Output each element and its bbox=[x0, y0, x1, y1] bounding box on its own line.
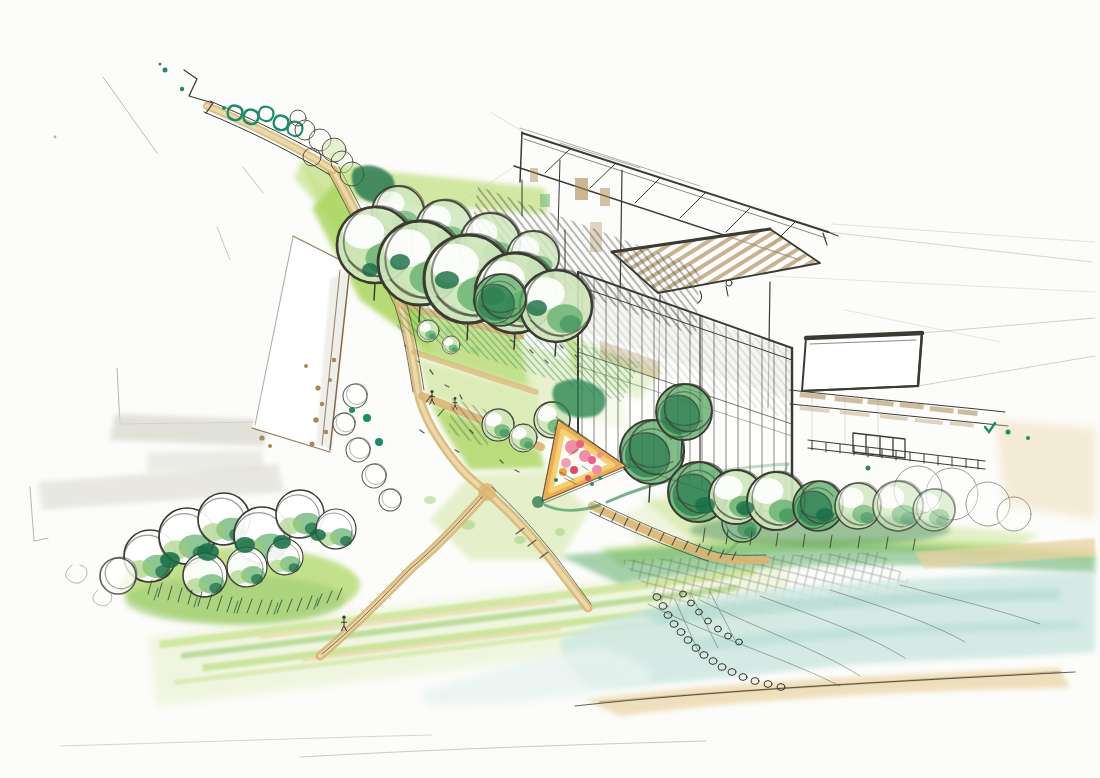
sketch-canvas bbox=[0, 0, 1100, 778]
dark-scribble-tree bbox=[474, 274, 526, 326]
roof-deck-wing bbox=[802, 333, 922, 391]
sketch-page bbox=[0, 0, 1100, 778]
